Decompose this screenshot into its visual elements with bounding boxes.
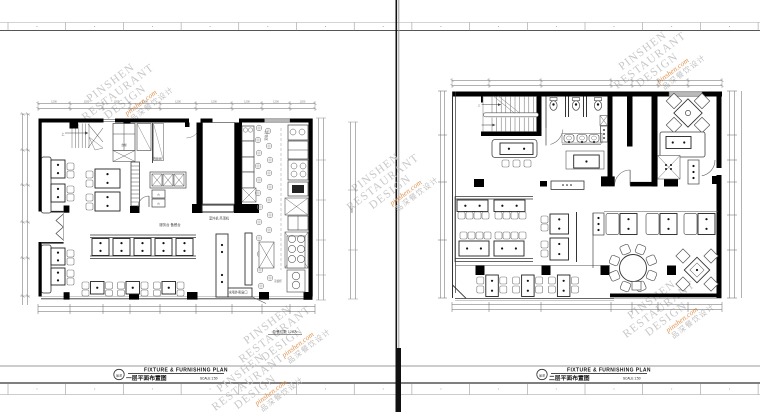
svg-text:1200: 1200 <box>142 100 148 104</box>
svg-text:FIXTURE & FURNISHING PLAN: FIXTURE & FURNISHING PLAN <box>567 368 651 374</box>
svg-text:1200: 1200 <box>84 100 90 104</box>
svg-text:1200: 1200 <box>273 100 279 104</box>
svg-text:服务台 备餐台: 服务台 备餐台 <box>159 222 181 227</box>
svg-text:1200: 1200 <box>114 100 120 104</box>
svg-text:8950: 8950 <box>350 207 354 213</box>
svg-text:二层平面布置图: 二层平面布置图 <box>549 374 590 382</box>
svg-text:上: 上 <box>61 131 64 136</box>
svg-text:食梯: 食梯 <box>121 143 127 147</box>
svg-text:1200: 1200 <box>244 100 250 104</box>
svg-text:品深: 品深 <box>116 373 122 378</box>
svg-text:品深: 品深 <box>539 373 545 378</box>
svg-text:SCALE 1:50: SCALE 1:50 <box>623 377 641 381</box>
svg-text:SCALE 1:50: SCALE 1:50 <box>200 377 218 381</box>
svg-text:1200: 1200 <box>175 100 181 104</box>
svg-text:水吧外卖窗口: 水吧外卖窗口 <box>228 290 247 295</box>
svg-text:一层平面布置图: 一层平面布置图 <box>126 374 167 382</box>
svg-text:总餐位数 126人: 总餐位数 126人 <box>273 329 298 334</box>
svg-text:1200: 1200 <box>211 100 217 104</box>
svg-text:打荷区: 打荷区 <box>264 131 269 141</box>
svg-text:洗碗间: 洗碗间 <box>152 156 162 161</box>
svg-text:蒸饭柜: 蒸饭柜 <box>274 279 282 283</box>
svg-text:室外机 吊顶机: 室外机 吊顶机 <box>209 216 230 221</box>
svg-text:FIXTURE & FURNISHING PLAN: FIXTURE & FURNISHING PLAN <box>144 368 228 374</box>
svg-text:1200: 1200 <box>51 100 57 104</box>
svg-text:1200: 1200 <box>300 100 306 104</box>
